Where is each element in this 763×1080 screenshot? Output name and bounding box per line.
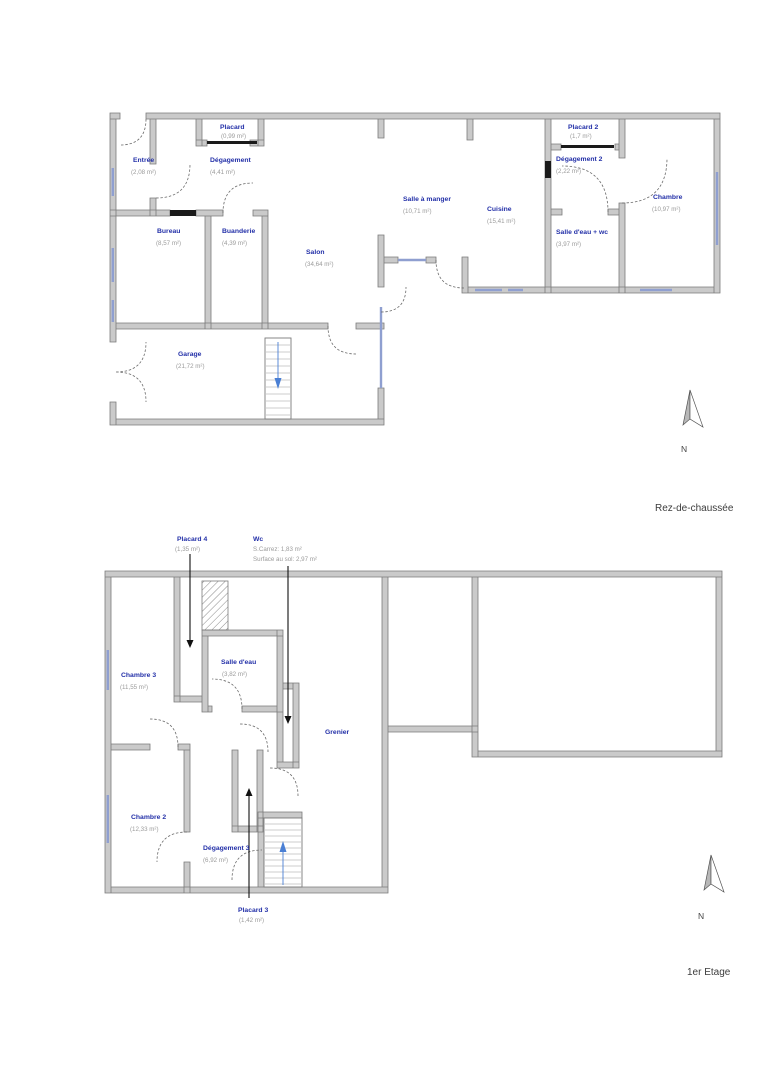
room-label-grenier: Grenier xyxy=(325,729,350,736)
room-label-placard-2: Placard 2 (1,7 m²) xyxy=(568,124,598,140)
wc-arrowhead-icon xyxy=(285,716,292,724)
ground-staircase xyxy=(265,338,291,419)
svg-text:Dégagement 2: Dégagement 2 xyxy=(556,156,603,163)
placard3-arrowhead-icon xyxy=(246,788,253,796)
svg-text:Placard 2: Placard 2 xyxy=(568,124,598,131)
placard4-arrowhead-icon xyxy=(187,640,194,648)
room-label-salon: Salon (34,64 m²) xyxy=(305,249,334,268)
svg-text:Buanderie: Buanderie xyxy=(222,228,255,235)
svg-text:(8,57 m²): (8,57 m²) xyxy=(156,240,181,247)
room-label-placard-3: Placard 3 (1,42 m²) xyxy=(238,907,268,924)
room-label-bureau: Bureau (8,57 m²) xyxy=(156,228,181,247)
room-label-salle-eau-wc: Salle d'eau + wc (3,97 m²) xyxy=(556,229,608,248)
ground-compass: N xyxy=(681,390,703,454)
first-room-labels: Placard 4 (1,35 m²) Wc S.Carrez: 1,83 m²… xyxy=(120,536,350,924)
north-label: N xyxy=(681,444,687,454)
svg-text:Chambre 2: Chambre 2 xyxy=(131,814,166,821)
floor-plan-page: Placard (0,99 m²) Entrée (2,08 m²) Dégag… xyxy=(0,0,763,1080)
svg-text:Grenier: Grenier xyxy=(325,729,350,736)
room-label-placard: Placard (0,99 m²) xyxy=(220,124,246,140)
svg-text:(11,55 m²): (11,55 m²) xyxy=(120,684,148,691)
svg-text:Surface au sol: 2,97 m²: Surface au sol: 2,97 m² xyxy=(253,556,317,563)
room-label-wc: Wc S.Carrez: 1,83 m² Surface au sol: 2,9… xyxy=(253,536,317,563)
room-label-chambre-2: Chambre 2 (12,33 m²) xyxy=(130,814,166,833)
svg-text:(3,97 m²): (3,97 m²) xyxy=(556,241,581,248)
svg-text:S.Carrez: 1,83 m²: S.Carrez: 1,83 m² xyxy=(253,546,302,553)
svg-text:(2,08 m²): (2,08 m²) xyxy=(131,169,156,176)
room-label-buanderie: Buanderie (4,39 m²) xyxy=(222,228,255,247)
svg-text:(4,39 m²): (4,39 m²) xyxy=(222,240,247,247)
north-label: N xyxy=(698,911,704,921)
svg-text:Salle d'eau: Salle d'eau xyxy=(221,659,256,666)
svg-text:(3,82 m²): (3,82 m²) xyxy=(222,671,247,678)
hatched-shaft xyxy=(202,581,228,630)
first-compass: N xyxy=(698,855,724,921)
svg-text:Dégagement 3: Dégagement 3 xyxy=(203,845,250,852)
room-label-salle-d-eau: Salle d'eau (3,82 m²) xyxy=(221,659,256,678)
svg-text:(15,41 m²): (15,41 m²) xyxy=(487,218,516,225)
svg-text:Dégagement: Dégagement xyxy=(210,157,252,164)
room-label-chambre-3: Chambre 3 (11,55 m²) xyxy=(120,672,156,691)
svg-text:Garage: Garage xyxy=(178,351,202,358)
svg-text:(10,97 m²): (10,97 m²) xyxy=(652,206,681,213)
svg-text:Placard: Placard xyxy=(220,124,245,131)
svg-text:Bureau: Bureau xyxy=(157,228,180,235)
room-label-degagement-3: Dégagement 3 (6,92 m²) xyxy=(203,845,250,864)
svg-text:Entrée: Entrée xyxy=(133,157,154,164)
room-label-cuisine: Cuisine (15,41 m²) xyxy=(487,206,516,225)
svg-text:Chambre: Chambre xyxy=(653,194,683,201)
ground-floor-plan: Placard (0,99 m²) Entrée (2,08 m²) Dégag… xyxy=(110,113,720,425)
svg-text:(34,64 m²): (34,64 m²) xyxy=(305,261,334,268)
svg-text:Salle à manger: Salle à manger xyxy=(403,196,451,203)
room-label-placard-4: Placard 4 (1,35 m²) xyxy=(175,536,207,553)
floor-plans-canvas: Placard (0,99 m²) Entrée (2,08 m²) Dégag… xyxy=(0,0,763,1080)
svg-text:Cuisine: Cuisine xyxy=(487,206,512,213)
svg-text:(10,71 m²): (10,71 m²) xyxy=(403,208,432,215)
room-label-degagement-2: Dégagement 2 (2,22 m²) xyxy=(556,156,603,175)
svg-text:(2,22 m²): (2,22 m²) xyxy=(556,168,581,175)
svg-text:(1,42 m²): (1,42 m²) xyxy=(239,917,264,924)
svg-text:Chambre 3: Chambre 3 xyxy=(121,672,156,679)
ground-floor-title: Rez-de-chaussée xyxy=(655,503,734,514)
room-label-garage: Garage (21,72 m²) xyxy=(176,351,205,370)
svg-text:(1,35 m²): (1,35 m²) xyxy=(175,546,200,553)
ground-room-labels: Placard (0,99 m²) Entrée (2,08 m²) Dégag… xyxy=(131,124,683,370)
north-arrow-icon xyxy=(683,390,703,427)
first-staircase xyxy=(264,818,302,887)
room-label-degagement: Dégagement (4,41 m²) xyxy=(210,157,252,176)
svg-text:Placard 4: Placard 4 xyxy=(177,536,207,543)
svg-text:(1,7 m²): (1,7 m²) xyxy=(570,133,592,140)
north-arrow-icon xyxy=(704,855,724,892)
first-floor-plan: Placard 4 (1,35 m²) Wc S.Carrez: 1,83 m²… xyxy=(105,536,722,924)
svg-text:Salon: Salon xyxy=(306,249,325,256)
room-label-chambre: Chambre (10,97 m²) xyxy=(652,194,683,213)
svg-text:Salle d'eau + wc: Salle d'eau + wc xyxy=(556,229,608,236)
room-label-entree: Entrée (2,08 m²) xyxy=(131,157,156,176)
first-wall-segments xyxy=(105,571,722,893)
svg-text:Placard 3: Placard 3 xyxy=(238,907,268,914)
svg-text:(4,41 m²): (4,41 m²) xyxy=(210,169,235,176)
svg-text:(6,92 m²): (6,92 m²) xyxy=(203,857,228,864)
svg-text:(0,99 m²): (0,99 m²) xyxy=(221,133,246,140)
room-label-salle-a-manger: Salle à manger (10,71 m²) xyxy=(403,196,451,215)
first-floor-title: 1er Etage xyxy=(687,967,731,978)
ground-wall-segments xyxy=(110,113,720,425)
svg-text:Wc: Wc xyxy=(253,536,263,543)
svg-text:(12,33 m²): (12,33 m²) xyxy=(130,826,159,833)
svg-text:(21,72 m²): (21,72 m²) xyxy=(176,363,205,370)
